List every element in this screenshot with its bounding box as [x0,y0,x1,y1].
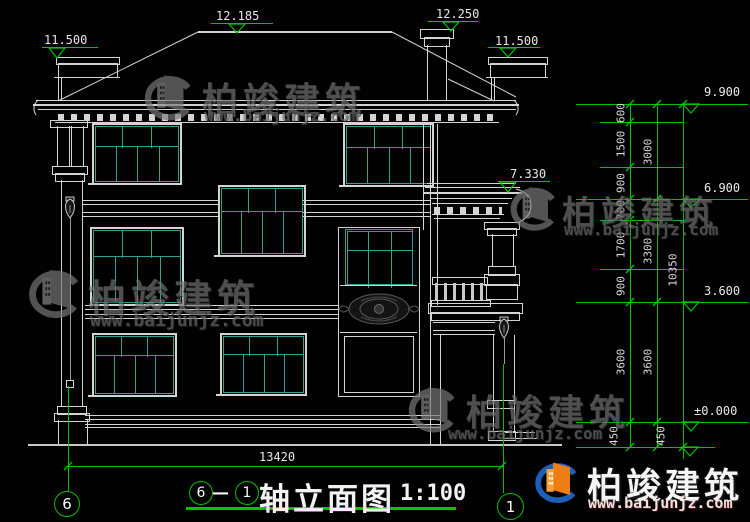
dim-level-line [600,220,684,221]
elev-label-roof-left: 11.500 [44,33,87,47]
dim-level-line [600,167,684,168]
title-axis-start: 6 [189,481,213,505]
dim-chain-line [630,104,631,447]
dim-value: 450 [655,426,668,446]
dim-value: 3600 [642,349,655,376]
axis-bubble-1: 1 [497,493,524,520]
drawing-title: 轴立面图 [259,474,395,519]
title-axis-end: 1 [235,481,259,505]
dim-level-line [576,199,748,200]
elev-label-ground: ±0.000 [694,404,737,418]
drawing-scale: 1:100 [400,481,466,506]
dim-level-line [576,422,748,423]
cad-elevation-drawing: 600 1500 900 700 1700 900 3600 450 3000 … [0,0,750,522]
dim-value: 1700 [615,232,628,259]
axis-bubble-6: 6 [54,491,80,517]
dimension-ticks [64,100,687,470]
dim-value: 3300 [642,238,655,265]
dim-value: 3000 [642,139,655,166]
elev-marker-line [211,23,273,24]
dim-value: 1500 [615,131,628,158]
column-lamp-icon [500,317,509,338]
elev-marker-line [498,181,550,182]
dim-level-line [600,122,684,123]
elev-label-floor3: 6.900 [704,181,740,195]
elev-label-floor2: 3.600 [704,284,740,298]
elev-marker-line [42,47,98,48]
dim-value: 700 [615,200,628,220]
dim-value: 10350 [667,253,680,286]
dim-value: 3600 [615,349,628,376]
elev-label-eave: 9.900 [704,85,740,99]
column-lamp-icon [66,197,75,218]
dim-level-line [576,447,715,448]
dim-value: 600 [615,103,628,123]
door-carving-ornament [339,294,419,324]
axis-line-1 [503,364,504,493]
axis-line-6 [68,386,69,491]
cornice-end-curves [34,100,518,115]
elev-label-chimney: 12.250 [436,7,479,21]
roof-slope-lines [58,32,516,101]
dim-value: 900 [615,173,628,193]
dim-level-line [576,104,748,105]
elevation-triangles [49,22,699,456]
dim-value: 900 [615,276,628,296]
overall-dim-value: 13420 [259,450,295,464]
porch-roof-bracket [516,189,531,222]
overall-dim-line [68,466,503,467]
dim-chain-line [683,104,684,459]
dim-level-line [576,302,748,303]
elev-label-porch-roof: 7.330 [510,167,546,181]
drawing-overlay [0,0,750,522]
elev-label-ridge: 12.185 [216,9,259,23]
dim-value: 450 [608,426,621,446]
dim-chain-line [657,104,658,447]
elev-marker-line [428,21,478,22]
elev-label-roof-right: 11.500 [495,34,538,48]
title-separator: — [212,483,229,503]
